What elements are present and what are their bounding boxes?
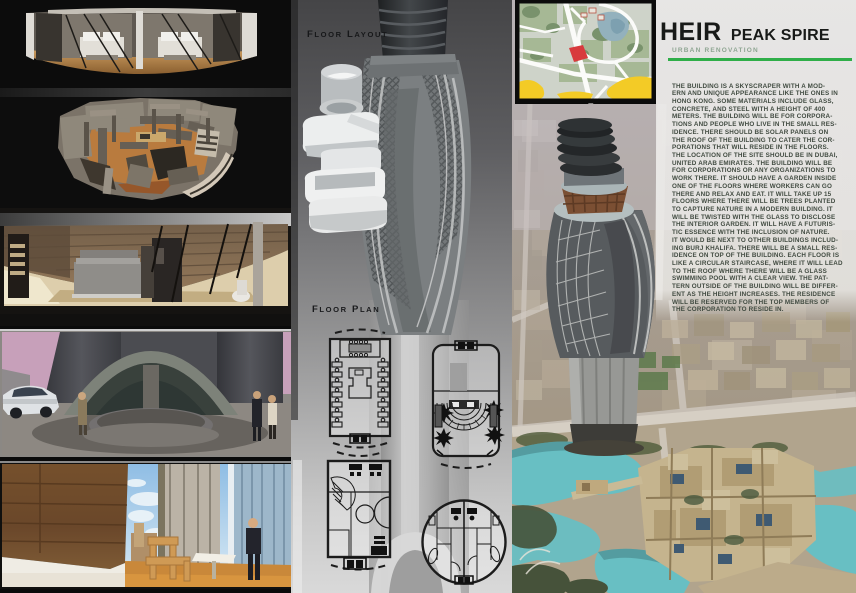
svg-text:FLOOR LAYOUT: FLOOR LAYOUT [307,29,388,40]
svg-text:FLOOR PLAN: FLOOR PLAN [312,304,380,315]
